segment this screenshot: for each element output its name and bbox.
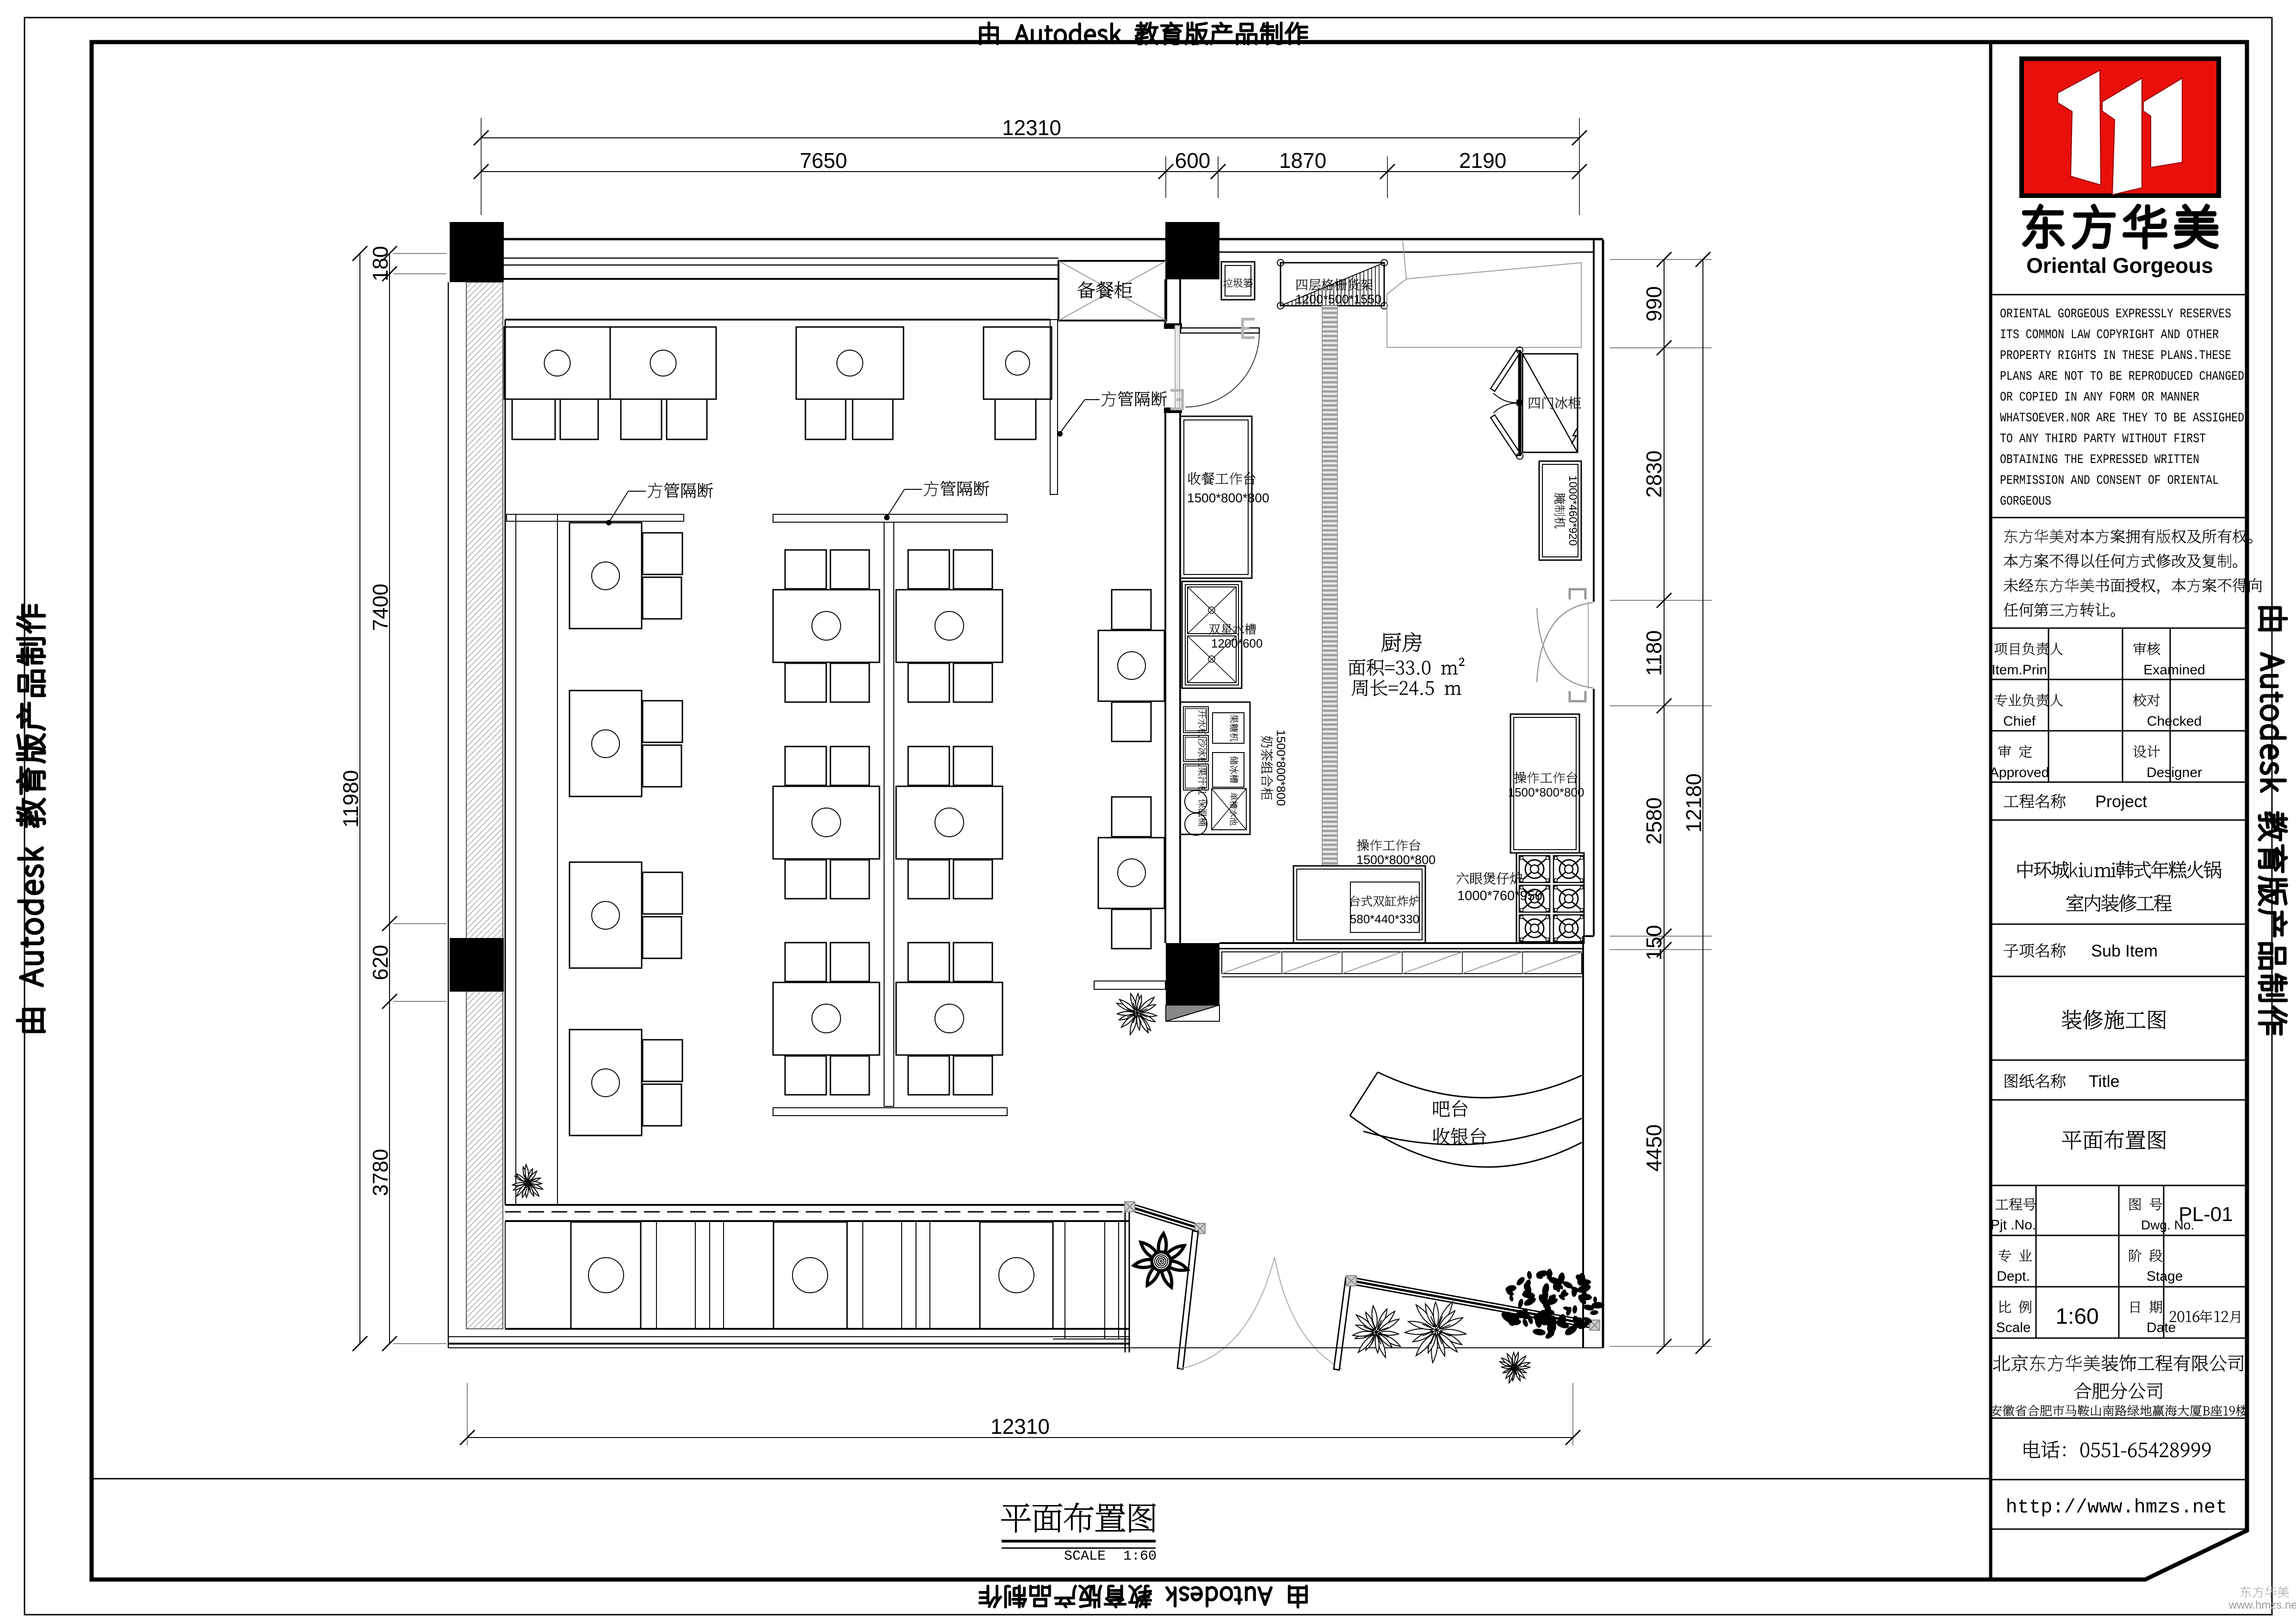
svg-text:Sub Item: Sub Item: [2091, 941, 2158, 960]
svg-text:WHATSOEVER.NOR ARE THEY TO BE: WHATSOEVER.NOR ARE THEY TO BE ASSIGHED: [2000, 411, 2244, 426]
svg-text:1500*800*800: 1500*800*800: [1274, 730, 1288, 806]
svg-text:1000*460*920: 1000*460*920: [1566, 475, 1579, 546]
svg-text:Dept.: Dept.: [1997, 1269, 2030, 1284]
svg-text:PL-01: PL-01: [2178, 1203, 2233, 1226]
svg-text:Date: Date: [2147, 1320, 2176, 1335]
svg-text:TO ANY THIRD PARTY WITHOUT FIR: TO ANY THIRD PARTY WITHOUT FIRST: [2000, 432, 2206, 446]
svg-text:7650: 7650: [800, 148, 847, 173]
svg-text:1500*800*800: 1500*800*800: [1508, 785, 1584, 799]
svg-text:OBTAINING THE EXPRESSED WRITTE: OBTAINING THE EXPRESSED WRITTEN: [2000, 453, 2199, 467]
svg-text:12310: 12310: [990, 1414, 1050, 1438]
svg-text:SCALE: SCALE: [1064, 1549, 1106, 1564]
svg-text:Item.Prin: Item.Prin: [1992, 662, 2047, 678]
svg-text:990: 990: [1642, 286, 1666, 322]
svg-text:Stage: Stage: [2147, 1269, 2183, 1284]
svg-text:Scale: Scale: [1996, 1320, 2030, 1335]
svg-text:Project: Project: [2095, 792, 2147, 811]
svg-text:4450: 4450: [1642, 1124, 1666, 1172]
svg-text:2580: 2580: [1642, 797, 1666, 845]
svg-text:1500*800*800: 1500*800*800: [1187, 491, 1269, 505]
svg-text:Examined: Examined: [2143, 662, 2205, 678]
svg-text:12180: 12180: [1682, 773, 1706, 833]
svg-text:1:60: 1:60: [2055, 1304, 2098, 1329]
svg-text:1200*500*1550: 1200*500*1550: [1295, 292, 1381, 306]
svg-text:3780: 3780: [368, 1149, 392, 1196]
svg-text:11980: 11980: [339, 770, 363, 828]
svg-text:Approved: Approved: [1990, 765, 2049, 780]
svg-text:www.hmzs.net: www.hmzs.net: [2228, 1599, 2296, 1611]
svg-text:PLANS ARE NOT TO BE REPRODUCED: PLANS ARE NOT TO BE REPRODUCED CHANGED: [2000, 370, 2244, 384]
svg-text:2830: 2830: [1642, 450, 1666, 498]
svg-text:Title: Title: [2089, 1072, 2120, 1091]
svg-text:Checked: Checked: [2147, 714, 2202, 729]
svg-text:ITS COMMON LAW COPYRIGHT AND O: ITS COMMON LAW COPYRIGHT AND OTHER: [2000, 328, 2219, 342]
svg-text:Pjt .No.: Pjt .No.: [1991, 1217, 2036, 1233]
svg-text:1:60: 1:60: [1123, 1549, 1157, 1564]
svg-text:PERMISSION AND CONSENT OF ORIE: PERMISSION AND CONSENT OF ORIENTAL: [2000, 474, 2219, 488]
svg-text:PROPERTY RIGHTS IN THESE PLANS: PROPERTY RIGHTS IN THESE PLANS.THESE: [2000, 349, 2231, 363]
svg-text:ORIENTAL GORGEOUS EXPRESSLY RE: ORIENTAL GORGEOUS EXPRESSLY RESERVES: [2000, 307, 2231, 321]
svg-text:Oriental Gorgeous: Oriental Gorgeous: [2026, 253, 2213, 278]
svg-text:Designer: Designer: [2147, 765, 2202, 780]
svg-text:1200*600: 1200*600: [1211, 636, 1262, 650]
svg-text:1870: 1870: [1279, 148, 1326, 173]
svg-text:OR COPIED IN ANY FORM OR MANNE: OR COPIED IN ANY FORM OR MANNER: [2000, 390, 2199, 405]
svg-text:7400: 7400: [368, 584, 392, 631]
svg-text:1000*760*950: 1000*760*950: [1457, 889, 1542, 903]
svg-text:580*440*330: 580*440*330: [1350, 912, 1419, 926]
svg-text:620: 620: [368, 945, 392, 981]
svg-text:150: 150: [1642, 925, 1666, 961]
svg-text:Chief: Chief: [2003, 714, 2036, 729]
svg-text:GORGEOUS: GORGEOUS: [2000, 494, 2051, 509]
svg-text:1500*800*800: 1500*800*800: [1356, 853, 1436, 867]
svg-text:180: 180: [368, 246, 392, 282]
svg-text:600: 600: [1175, 148, 1211, 173]
svg-text:http://www.hmzs.net: http://www.hmzs.net: [2006, 1496, 2228, 1518]
svg-text:1180: 1180: [1642, 630, 1666, 676]
svg-text:2190: 2190: [1459, 148, 1506, 173]
svg-text:12310: 12310: [1002, 116, 1061, 140]
